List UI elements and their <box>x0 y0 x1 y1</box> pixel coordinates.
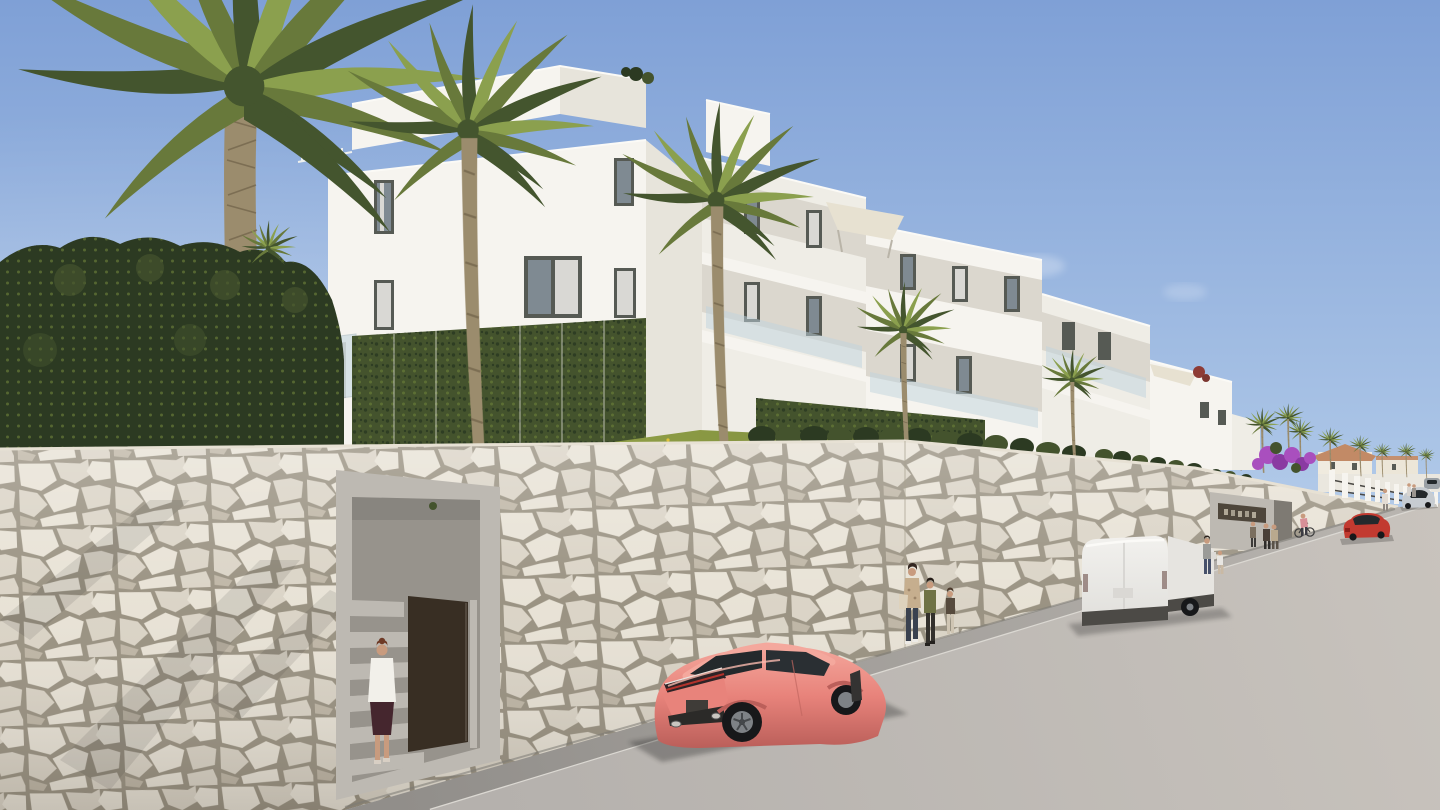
side-vent <box>850 670 862 702</box>
pedestrian-entrance <box>336 470 500 800</box>
wall-sconce-plant <box>429 502 437 510</box>
apartment-block-d <box>1042 294 1150 470</box>
rear-wheel <box>722 702 762 742</box>
grey-car-distant <box>1424 478 1440 489</box>
boxwood-hedge <box>0 237 344 452</box>
side-mirror <box>1211 552 1216 559</box>
exhaust-tip <box>671 721 681 727</box>
exhaust-tip <box>712 713 721 719</box>
license-plate <box>1113 588 1133 598</box>
scene-canvas: New-build apartment complex street view <box>0 0 1440 810</box>
entrance-gate <box>408 596 468 752</box>
shopping-bag <box>899 594 908 610</box>
render-image: New-build apartment complex street view <box>0 0 1440 810</box>
